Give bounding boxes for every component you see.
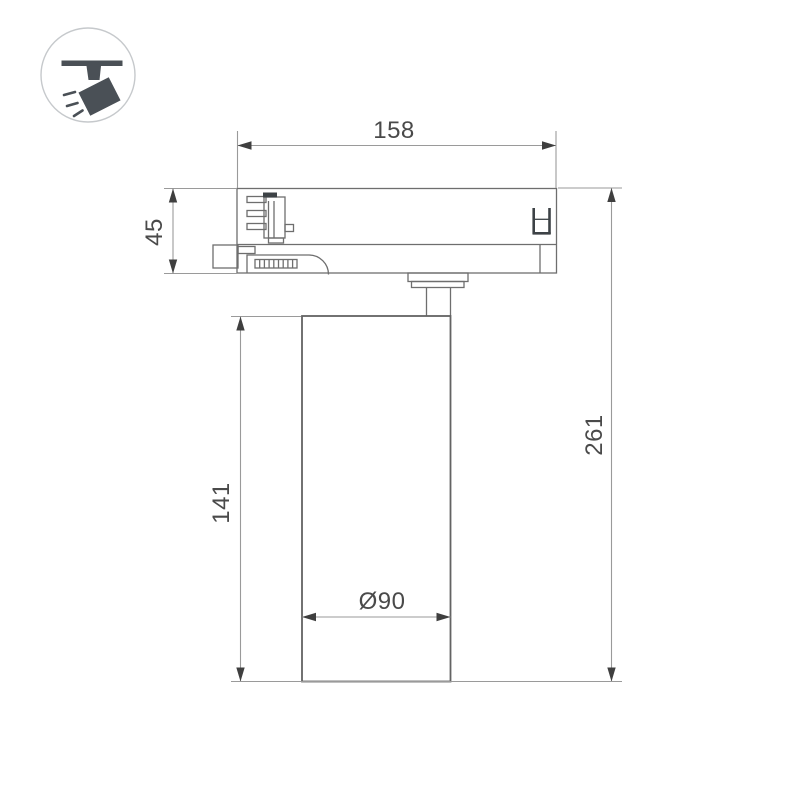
dimension-body-height: 141 bbox=[208, 317, 301, 682]
dimension-body-diameter: Ø90 bbox=[302, 588, 451, 621]
adapter-contact-pins bbox=[247, 193, 294, 244]
dimension-total-height: 261 bbox=[558, 188, 622, 682]
adapter-slider-ribs bbox=[260, 260, 293, 269]
dimension-label-adapter-width: 158 bbox=[373, 117, 415, 144]
lamp-body-cylinder bbox=[302, 316, 451, 682]
dimension-adapter-width: 158 bbox=[238, 117, 557, 188]
adapter-clip bbox=[533, 208, 551, 234]
dimension-label-adapter-height: 45 bbox=[141, 218, 168, 246]
technical-drawing-svg: 158 45 141 bbox=[0, 0, 800, 800]
dimension-adapter-height: 45 bbox=[141, 189, 237, 274]
adapter-pin-cap bbox=[263, 193, 277, 198]
adapter-latch bbox=[213, 245, 238, 268]
dimension-label-body-diameter: Ø90 bbox=[359, 588, 406, 615]
adapter-latch-notch bbox=[238, 247, 255, 254]
icon-track-bar bbox=[62, 61, 123, 67]
mounting-stem bbox=[408, 273, 468, 316]
track-adapter bbox=[213, 189, 557, 275]
dimension-label-total-height: 261 bbox=[581, 414, 608, 456]
stem-flange-lower bbox=[412, 282, 465, 288]
stem-neck bbox=[427, 288, 451, 317]
track-spotlight-icon bbox=[41, 28, 135, 122]
icon-stem bbox=[87, 66, 102, 80]
adapter-slider-ribs-frame bbox=[255, 260, 297, 269]
dimension-label-body-height: 141 bbox=[208, 482, 235, 524]
drawing-canvas: 158 45 141 bbox=[0, 0, 800, 800]
stem-flange-upper bbox=[408, 273, 468, 282]
